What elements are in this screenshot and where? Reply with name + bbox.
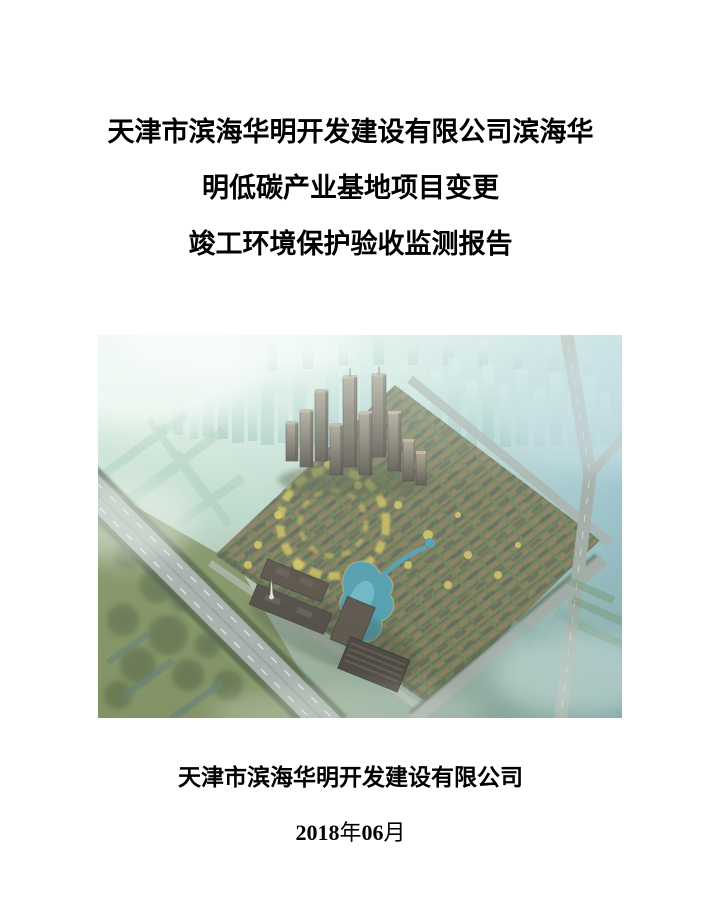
date-month: 06	[362, 820, 384, 845]
date-month-unit: 月	[384, 820, 406, 845]
report-title: 天津市滨海华明开发建设有限公司滨海华 明低碳产业基地项目变更 竣工环境保护验收监…	[0, 104, 701, 272]
title-line-3: 竣工环境保护验收监测报告	[0, 216, 701, 272]
date-year: 2018	[295, 820, 339, 845]
publish-date: 2018年06月	[0, 822, 701, 844]
date-year-unit: 年	[339, 820, 361, 845]
title-line-2: 明低碳产业基地项目变更	[0, 160, 701, 216]
aerial-rendering-illustration	[98, 335, 622, 718]
report-cover-page: 天津市滨海华明开发建设有限公司滨海华 明低碳产业基地项目变更 竣工环境保护验收监…	[0, 0, 701, 917]
publisher-name: 天津市滨海华明开发建设有限公司	[0, 765, 701, 790]
cover-image	[98, 335, 622, 718]
title-line-1: 天津市滨海华明开发建设有限公司滨海华	[0, 104, 701, 160]
